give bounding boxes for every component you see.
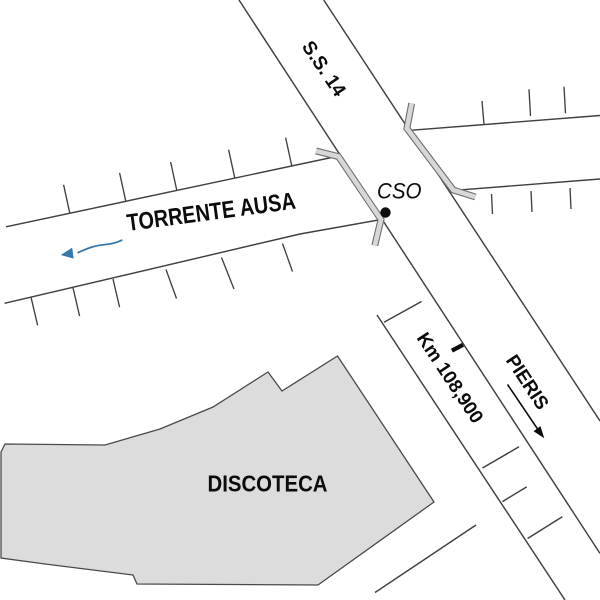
svg-text:CSO: CSO xyxy=(377,179,422,204)
svg-text:DISCOTECA: DISCOTECA xyxy=(208,471,328,497)
